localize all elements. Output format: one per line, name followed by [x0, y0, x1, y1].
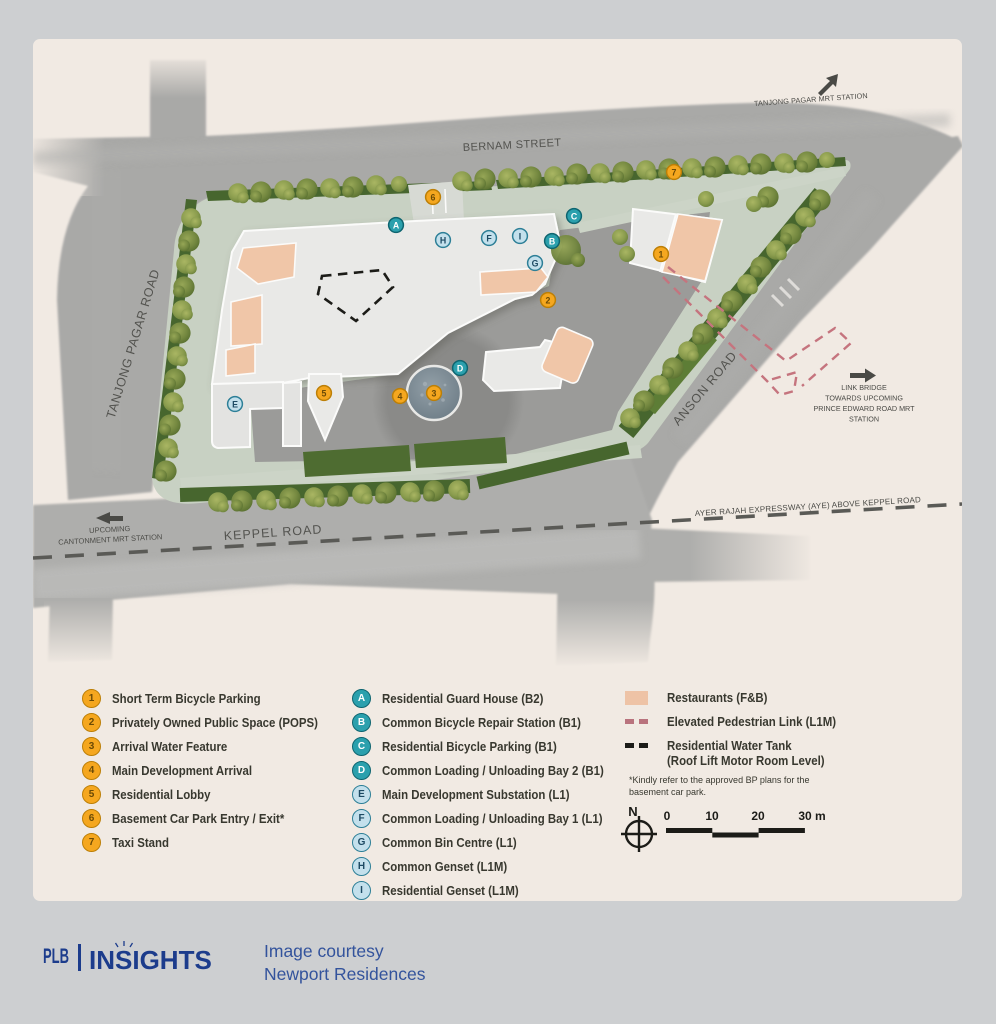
svg-text:LINK BRIDGE: LINK BRIDGE [841, 383, 887, 392]
svg-text:7: 7 [672, 168, 677, 178]
svg-text:E: E [232, 400, 238, 410]
svg-text:STATION: STATION [849, 415, 879, 424]
svg-text:4: 4 [398, 392, 403, 402]
svg-text:A: A [393, 221, 400, 231]
svg-text:3: 3 [432, 389, 437, 399]
svg-text:I: I [519, 232, 521, 242]
svg-text:0: 0 [664, 809, 671, 823]
svg-text:C: C [571, 212, 578, 222]
svg-text:B: B [549, 237, 555, 247]
svg-text:H: H [440, 236, 446, 246]
svg-text:20: 20 [751, 809, 765, 823]
svg-text:6: 6 [431, 193, 436, 203]
svg-text:10: 10 [705, 809, 719, 823]
svg-text:F: F [486, 234, 492, 244]
svg-text:TOWARDS UPCOMING: TOWARDS UPCOMING [825, 394, 903, 403]
svg-text:30 m: 30 m [798, 809, 825, 823]
svg-text:G: G [532, 259, 539, 269]
svg-text:2: 2 [546, 296, 551, 306]
svg-text:5: 5 [322, 389, 327, 399]
svg-text:PRINCE EDWARD ROAD MRT: PRINCE EDWARD ROAD MRT [813, 404, 915, 413]
svg-text:1: 1 [659, 250, 664, 260]
svg-text:D: D [457, 364, 463, 374]
